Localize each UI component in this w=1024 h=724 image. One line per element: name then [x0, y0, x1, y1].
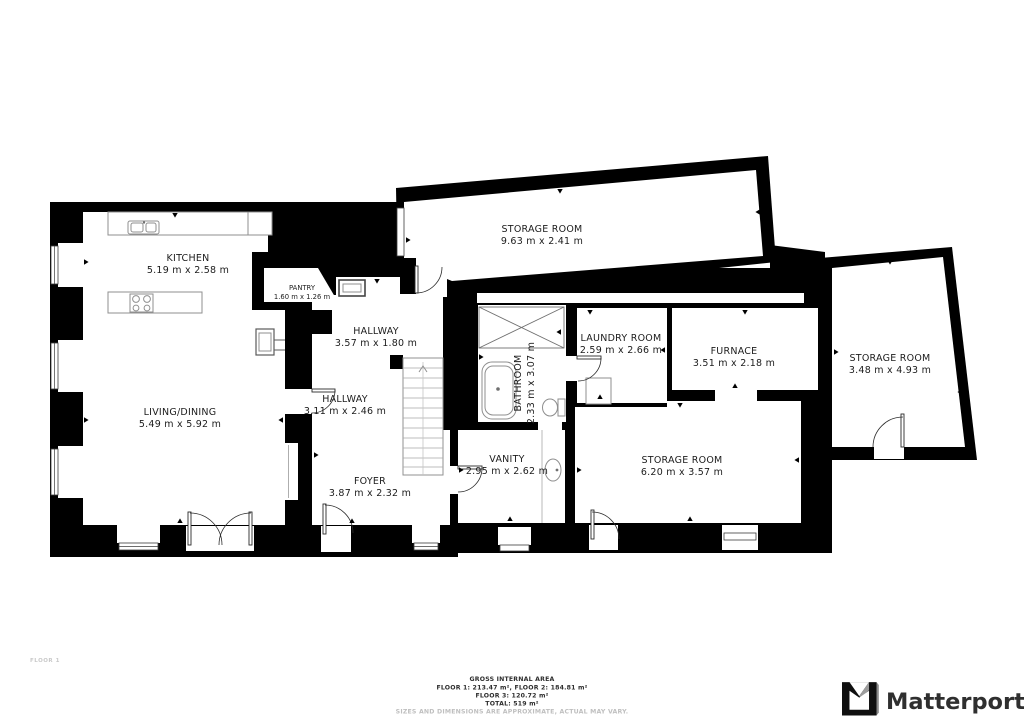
room-name: PANTRY	[289, 284, 316, 292]
room-name: STORAGE ROOM	[850, 353, 931, 364]
room-dims: 3.48 m x 4.93 m	[849, 365, 931, 376]
room-dims: 5.49 m x 5.92 m	[139, 419, 221, 430]
matterport-logo-icon	[842, 682, 879, 715]
label-storage-right: STORAGE ROOM 3.48 m x 4.93 m	[849, 353, 931, 376]
room-name: BATHROOM	[513, 355, 524, 412]
niche-living-window-2	[58, 446, 83, 498]
floor-plan-page: KITCHEN 5.19 m x 2.58 m LIVING/DINING 5.…	[0, 0, 1024, 724]
room-dims: 5.19 m x 2.58 m	[147, 265, 229, 276]
room-dims: 2.59 m x 2.66 m	[580, 345, 662, 356]
footer: FLOOR 1 GROSS INTERNAL AREA FLOOR 1: 213…	[30, 658, 628, 716]
storage-window-icon	[724, 533, 756, 540]
niche-foyer-window	[412, 525, 440, 543]
staircase	[403, 358, 443, 475]
room-name: FURNACE	[711, 346, 758, 357]
room-dims: 3.57 m x 1.80 m	[335, 338, 417, 349]
kitchen-island	[108, 292, 202, 313]
threshold-storage-right-door	[874, 447, 904, 459]
room-dims: 3.87 m x 2.32 m	[329, 488, 411, 499]
room-name: LAUNDRY ROOM	[581, 333, 662, 344]
footer-total: TOTAL: 519 m²	[485, 701, 538, 708]
room-dims: 2.33 m x 3.07 m	[526, 342, 537, 424]
floor-plan: KITCHEN 5.19 m x 2.58 m LIVING/DINING 5.…	[0, 0, 1024, 724]
room-dims: 2.95 m x 2.62 m	[466, 466, 548, 477]
opening-furnace-storage	[715, 387, 757, 402]
label-laundry-room: LAUNDRY ROOM 2.59 m x 2.66 m	[580, 333, 662, 356]
room-dims: 6.20 m x 3.57 m	[641, 467, 723, 478]
matterport-logo-text: Matterport	[886, 689, 1024, 715]
footer-title: GROSS INTERNAL AREA	[469, 676, 554, 683]
storage-top-window-icon	[397, 208, 404, 256]
label-living-dining: LIVING/DINING 5.49 m x 5.92 m	[139, 407, 221, 430]
exterior-gap	[477, 293, 804, 303]
room-name: KITCHEN	[167, 253, 210, 264]
niche-living-window-1	[58, 340, 83, 392]
hallway-wall-jut	[298, 310, 332, 334]
room-dims: 3.51 m x 2.18 m	[693, 358, 775, 369]
footer-areas-line2: FLOOR 3: 120.72 m²	[475, 693, 548, 700]
pantry-cabinet	[339, 280, 365, 296]
room-dims: 3.11 m x 2.46 m	[304, 406, 386, 417]
toilet-icon	[543, 399, 558, 416]
room-name: LIVING/DINING	[144, 407, 217, 418]
niche-kitchen-window	[58, 243, 83, 287]
laundry-fixtures	[586, 378, 611, 404]
wing-connector-wall	[770, 245, 825, 272]
room-storage-right-floor	[832, 257, 965, 447]
room-name: HALLWAY	[322, 394, 368, 405]
label-storage-bottom: STORAGE ROOM 6.20 m x 3.57 m	[641, 455, 723, 478]
room-name: STORAGE ROOM	[642, 455, 723, 466]
room-name: VANITY	[489, 454, 524, 465]
niche-living-recess	[285, 443, 298, 500]
label-storage-top: STORAGE ROOM 9.63 m x 2.41 m	[501, 224, 583, 247]
branding: Matterport	[842, 682, 1024, 715]
storage-door-jamb	[400, 258, 416, 294]
stairs-wall-jut	[390, 355, 403, 369]
floor-tag: FLOOR 1	[30, 658, 60, 664]
opening-foyer-vanity	[448, 466, 458, 494]
storage-top-door-bay	[416, 255, 447, 297]
room-dims: 1.60 m x 1.26 m	[274, 293, 331, 301]
room-name: STORAGE ROOM	[502, 224, 583, 235]
toilet-tank	[558, 399, 565, 416]
washer-icon	[586, 378, 611, 404]
kitchen-counter-2	[248, 212, 272, 235]
room-name: HALLWAY	[353, 326, 399, 337]
niche-living-bottom-window	[117, 525, 160, 543]
footer-areas-line1: FLOOR 1: 213.47 m², FLOOR 2: 184.81 m²	[436, 685, 587, 692]
vanity-window-icon	[500, 545, 529, 551]
footer-disclaimer: SIZES AND DIMENSIONS ARE APPROXIMATE, AC…	[396, 709, 629, 716]
niche-vanity-window	[498, 527, 531, 545]
bathtub-icon	[482, 362, 516, 419]
room-name: FOYER	[354, 476, 386, 487]
opening-bathroom-laundry	[564, 356, 577, 381]
room-dims: 9.63 m x 2.41 m	[501, 236, 583, 247]
